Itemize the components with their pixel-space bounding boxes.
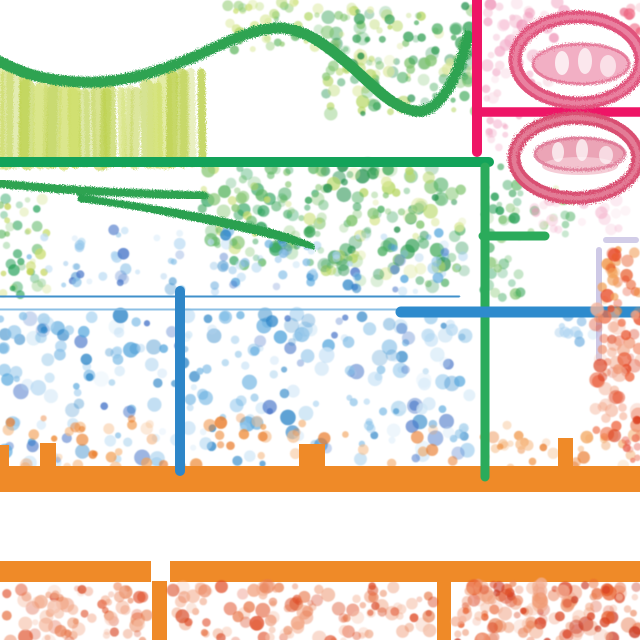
dots-bottom-block-3 bbox=[451, 578, 640, 640]
dots-bottom-block-2 bbox=[167, 579, 439, 640]
artwork-canvas bbox=[0, 0, 640, 640]
dots-left-greens bbox=[0, 194, 51, 299]
dots-bottom-block-1 bbox=[2, 582, 153, 640]
abstract-crayon-art bbox=[0, 0, 640, 640]
dots-red-right bbox=[589, 303, 640, 443]
